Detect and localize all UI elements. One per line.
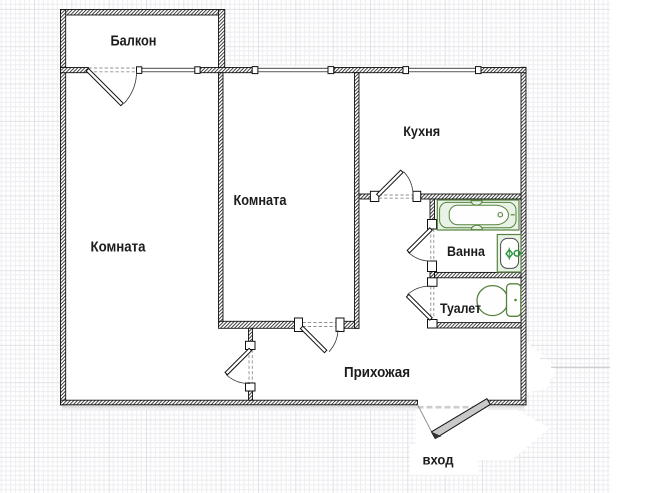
svg-text:Комната: Комната [234, 193, 288, 209]
svg-text:вход: вход [423, 453, 454, 468]
svg-text:Балкон: Балкон [111, 32, 157, 49]
svg-text:Комната: Комната [91, 238, 147, 255]
svg-text:Ванна: Ванна [447, 243, 485, 259]
svg-text:Туалет: Туалет [440, 300, 481, 316]
svg-text:Кухня: Кухня [403, 123, 440, 139]
svg-text:Прихожая: Прихожая [344, 365, 410, 381]
